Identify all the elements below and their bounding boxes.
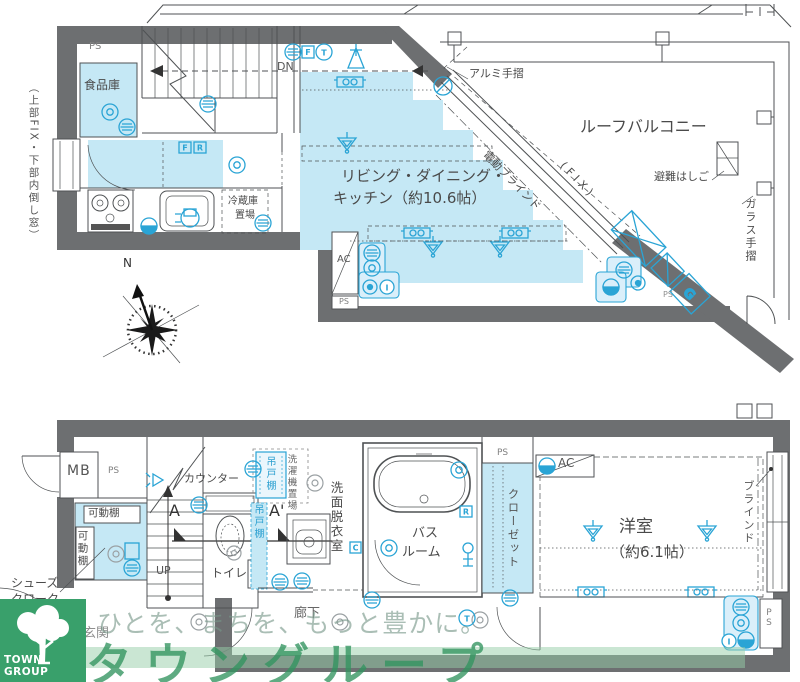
svg-text:F: F bbox=[182, 144, 187, 153]
bedroom-size-label: （約6.1帖） bbox=[610, 545, 694, 560]
pantry-fill bbox=[80, 63, 137, 137]
svg-text:R: R bbox=[463, 508, 469, 517]
aluminum-rail-label: アルミ手摺 bbox=[469, 68, 524, 79]
ps-label-ac: PS bbox=[339, 298, 349, 306]
movable-shelf-label-2: 可動棚 bbox=[77, 530, 88, 568]
town-group-logo: TOWN GROUP bbox=[0, 599, 86, 682]
bathroom-label-line1: バス bbox=[412, 527, 438, 540]
ps-label-lower-top: PS bbox=[497, 449, 508, 458]
ac-label-lower: AC bbox=[558, 457, 574, 469]
section-a-label: A bbox=[169, 503, 180, 519]
bedroom-label: 洋室 bbox=[619, 519, 653, 536]
svg-text:T: T bbox=[321, 49, 327, 58]
intercom-icon bbox=[146, 473, 163, 487]
dn-label: DN bbox=[277, 61, 294, 72]
counter-label: カウンター bbox=[184, 473, 239, 484]
shoe-closet-label-line1: シューズ bbox=[11, 577, 58, 589]
fridge-label-line1: 冷蔵庫 bbox=[228, 197, 258, 207]
ldk-label-line2: キッチン（約10.6帖） bbox=[333, 191, 486, 206]
vanity bbox=[287, 514, 330, 564]
glass-rail-label: ガラス手摺 bbox=[745, 198, 756, 263]
washer-space-label: 洗濯機置場 bbox=[286, 454, 296, 512]
escape-ladder-icon bbox=[717, 142, 738, 175]
left-window bbox=[53, 139, 80, 191]
mb-label: MB bbox=[67, 464, 91, 478]
ps-label-lower-left: PS bbox=[108, 467, 119, 476]
ac-label-upper: AC bbox=[337, 255, 351, 265]
blind-label: ブラインド bbox=[743, 480, 754, 545]
svg-text:C: C bbox=[353, 544, 359, 553]
svg-text:R: R bbox=[197, 144, 203, 153]
shower-icon bbox=[463, 543, 473, 566]
ps-label-upper-left: PS bbox=[89, 42, 101, 52]
compass-north-label: N bbox=[123, 257, 132, 269]
meter-cluster-upper bbox=[596, 257, 645, 302]
washroom-label: 洗面脱衣室 bbox=[329, 481, 342, 554]
stove-icon bbox=[88, 190, 133, 232]
ps-label-bottom-right: PS bbox=[764, 608, 773, 628]
left-window-note: （上部FIX・下部内倒し窓） bbox=[28, 82, 39, 242]
escape-ladder-label: 避難はしご bbox=[654, 171, 709, 182]
up-label: UP bbox=[156, 565, 171, 576]
closet-label: クローゼット bbox=[507, 488, 519, 569]
stairs-lower bbox=[146, 447, 205, 601]
town-group-logo-text: TOWN GROUP bbox=[4, 654, 86, 678]
antenna-icon bbox=[348, 44, 364, 68]
bathroom: R C bbox=[350, 443, 482, 597]
bathroom-label-line2: ルーム bbox=[402, 546, 441, 559]
bedroom-window bbox=[756, 452, 788, 592]
pantry-label: 食品庫 bbox=[84, 79, 120, 91]
section-a-prime-label: A' bbox=[269, 503, 284, 519]
svg-text:F: F bbox=[305, 48, 310, 57]
ps-label-diagonal: PS bbox=[663, 291, 673, 299]
hanging-cupboard-label-2: 吊戸棚 bbox=[252, 504, 262, 540]
svg-text:I: I bbox=[728, 638, 731, 647]
watermark-brand: タウングループ bbox=[86, 629, 496, 682]
roof-balcony-label: ルーフバルコニー bbox=[580, 119, 707, 135]
hanging-cupboard-label-1: 吊戸棚 bbox=[264, 456, 274, 492]
floorplan-drawing: G F T F R bbox=[0, 0, 800, 682]
sink-icon bbox=[160, 191, 214, 231]
floorplan-page: G F T F R bbox=[0, 0, 800, 682]
movable-shelf-label-1: 可動棚 bbox=[88, 508, 120, 519]
fridge-label-line2: 置場 bbox=[235, 211, 255, 221]
compass bbox=[103, 284, 199, 363]
ldk-label-line1: リビング・ダイニング・ bbox=[341, 169, 506, 184]
svg-text:I: I bbox=[386, 284, 389, 293]
toilet-label: トイレ bbox=[211, 567, 247, 579]
roof-outline bbox=[147, 4, 791, 27]
